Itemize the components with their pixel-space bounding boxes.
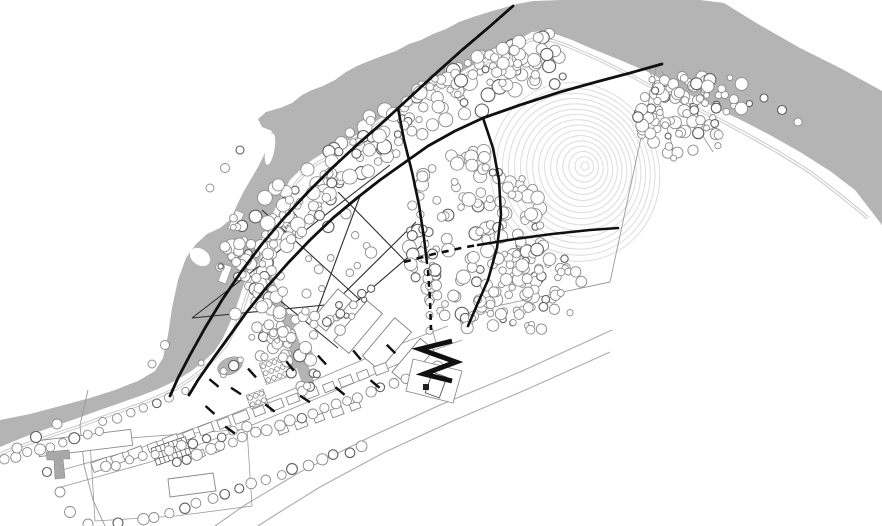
tree <box>297 227 307 237</box>
tree <box>261 353 268 360</box>
tree <box>69 433 80 444</box>
tree <box>794 118 802 126</box>
tree <box>165 509 174 518</box>
tree <box>336 309 345 318</box>
tree <box>472 277 482 287</box>
tree <box>455 91 462 98</box>
tree <box>482 164 489 171</box>
tree <box>308 201 318 211</box>
tree <box>139 404 147 412</box>
tree <box>389 379 399 389</box>
tree <box>727 75 733 81</box>
tree <box>696 95 703 102</box>
tree <box>350 139 357 146</box>
tree <box>229 361 239 371</box>
tree <box>448 290 459 301</box>
tree <box>111 461 120 470</box>
tree <box>426 119 438 131</box>
tree <box>489 287 499 297</box>
tree <box>217 433 226 442</box>
tree <box>297 414 306 423</box>
wedge-building <box>168 473 216 497</box>
tree <box>539 302 548 311</box>
tree <box>346 269 354 277</box>
tree <box>431 280 442 291</box>
tree <box>715 143 721 149</box>
tree <box>671 155 677 161</box>
tree <box>500 274 512 286</box>
tree <box>723 108 730 115</box>
tree <box>336 302 343 309</box>
tree <box>252 273 261 282</box>
tree <box>277 327 288 338</box>
tree <box>366 116 375 125</box>
tree <box>576 276 587 287</box>
tree <box>83 430 92 439</box>
tree <box>442 301 449 308</box>
tree <box>310 320 318 328</box>
tree <box>652 87 659 94</box>
tree <box>220 368 227 375</box>
tree <box>188 439 198 449</box>
tree <box>262 248 273 259</box>
tree <box>476 188 486 198</box>
tree <box>284 415 295 426</box>
tree <box>182 387 189 394</box>
tree <box>735 78 748 91</box>
tree <box>218 264 223 269</box>
tree <box>499 79 506 86</box>
tree <box>303 460 314 471</box>
tree <box>151 450 159 458</box>
tree <box>302 307 310 315</box>
tree <box>459 108 471 120</box>
tree <box>261 425 272 436</box>
tree <box>541 48 553 60</box>
wall-dash <box>209 379 218 387</box>
tree <box>230 214 238 222</box>
tree <box>665 143 673 151</box>
tree <box>315 211 325 221</box>
tree <box>509 284 515 290</box>
tree <box>533 32 543 42</box>
tree <box>718 85 726 93</box>
tree <box>335 148 343 156</box>
tree <box>99 418 107 426</box>
tree <box>306 256 312 262</box>
tree <box>252 322 263 333</box>
tree <box>704 125 710 131</box>
tree <box>0 454 9 464</box>
tree <box>505 291 513 299</box>
tree <box>161 341 170 350</box>
tree <box>426 83 434 91</box>
tree <box>458 204 465 211</box>
tree <box>287 235 296 244</box>
tree <box>479 152 491 164</box>
tree <box>439 113 453 127</box>
tree <box>561 255 568 262</box>
tree <box>489 169 496 176</box>
tree <box>662 122 669 129</box>
tree <box>366 387 376 397</box>
tree <box>343 397 352 406</box>
pier-block <box>423 384 429 390</box>
tree <box>567 310 573 316</box>
tree <box>310 311 320 321</box>
tree <box>31 432 42 443</box>
tree <box>327 255 334 262</box>
tree <box>148 360 156 368</box>
tree <box>676 130 683 137</box>
tree <box>513 250 521 258</box>
parcel <box>338 374 353 387</box>
tree <box>278 353 287 362</box>
tree <box>269 329 277 337</box>
tree <box>238 357 244 363</box>
tree <box>352 393 362 403</box>
tree <box>177 441 187 451</box>
tree <box>172 458 181 467</box>
tree <box>471 51 484 64</box>
tree <box>259 261 266 268</box>
tree <box>760 94 768 102</box>
tree <box>374 158 382 166</box>
tree <box>657 109 663 115</box>
tree <box>688 145 698 155</box>
tree <box>559 73 566 80</box>
tree <box>138 452 147 461</box>
wall-dash <box>206 406 215 414</box>
tree <box>461 322 473 334</box>
tree <box>439 310 450 321</box>
tree <box>510 319 516 325</box>
tree <box>468 251 480 263</box>
tree <box>331 399 341 409</box>
site-plan <box>0 0 882 526</box>
tree <box>127 408 136 417</box>
parcel <box>198 422 214 435</box>
tree <box>408 201 417 210</box>
tree <box>428 165 436 173</box>
tree <box>531 71 539 79</box>
tree <box>55 487 65 497</box>
tree <box>487 79 493 85</box>
tree <box>729 95 738 104</box>
tree <box>394 131 401 138</box>
tree <box>52 419 62 429</box>
tree <box>251 427 261 437</box>
tree <box>640 93 649 102</box>
tree <box>519 176 525 182</box>
tree <box>674 87 684 97</box>
tree <box>441 233 452 244</box>
tree <box>35 444 46 455</box>
orchard-lot <box>246 389 268 408</box>
tree <box>342 169 357 184</box>
tree <box>482 66 489 73</box>
tree <box>249 334 255 340</box>
tree <box>417 129 428 140</box>
tree <box>525 208 538 221</box>
tree <box>497 207 509 219</box>
tree <box>419 103 428 112</box>
tree <box>275 420 286 431</box>
tree <box>258 190 273 205</box>
tree <box>499 267 506 274</box>
tree <box>302 289 311 298</box>
tree <box>198 360 204 366</box>
tree <box>405 258 418 271</box>
tree <box>285 196 293 204</box>
tree <box>46 443 55 452</box>
parcel <box>286 393 300 405</box>
tree <box>778 106 787 115</box>
parcel <box>252 405 265 416</box>
tree <box>433 196 441 204</box>
tree <box>95 427 103 435</box>
tree <box>264 320 274 330</box>
tree <box>456 270 470 284</box>
tree <box>164 446 174 456</box>
tree <box>417 171 428 182</box>
tree <box>735 102 748 115</box>
tree <box>260 216 275 231</box>
tree <box>523 303 533 313</box>
tree <box>543 253 556 266</box>
tree <box>509 45 519 55</box>
tree <box>273 306 286 319</box>
tree <box>356 441 367 452</box>
tree <box>557 268 565 276</box>
wall-dash <box>248 369 256 378</box>
tree <box>12 443 22 453</box>
tree <box>649 77 655 83</box>
tree <box>138 514 149 525</box>
tree <box>354 262 361 269</box>
tree <box>59 439 67 447</box>
tree <box>322 193 331 202</box>
tree <box>327 178 337 188</box>
tree <box>180 503 190 513</box>
tree <box>309 331 317 339</box>
tree <box>467 262 477 272</box>
tree <box>531 191 544 204</box>
tree <box>203 435 211 443</box>
wall-dash <box>353 350 361 359</box>
tree <box>451 157 464 170</box>
tree <box>468 70 478 80</box>
tree <box>437 213 446 222</box>
tree <box>514 310 524 320</box>
tree <box>328 450 338 460</box>
tree <box>261 475 271 485</box>
tree <box>230 224 236 230</box>
tree <box>220 490 230 500</box>
tree <box>349 313 355 319</box>
tree <box>543 60 556 73</box>
tree <box>215 441 225 451</box>
tree <box>314 265 323 274</box>
tree <box>246 240 255 249</box>
tree <box>416 116 422 122</box>
tree <box>182 455 191 464</box>
tree <box>350 301 358 309</box>
tree <box>11 452 21 462</box>
tree <box>522 274 532 284</box>
tree <box>23 448 32 457</box>
tree <box>432 100 445 113</box>
parcel <box>356 369 369 380</box>
tree <box>228 438 237 447</box>
wall-dash <box>318 356 326 365</box>
tree <box>680 74 688 82</box>
tree <box>487 310 494 317</box>
tree <box>191 498 201 508</box>
tree <box>647 104 656 113</box>
tree <box>536 324 546 334</box>
tree <box>365 247 376 258</box>
tree <box>476 228 484 236</box>
tree <box>528 53 541 66</box>
site-plan-canvas <box>0 0 882 526</box>
tree <box>320 403 329 412</box>
tree <box>481 88 495 102</box>
tree <box>407 231 417 241</box>
tree <box>549 79 560 90</box>
tree <box>221 164 230 173</box>
tree <box>433 291 442 300</box>
tree <box>313 371 320 378</box>
tree <box>345 128 354 137</box>
tree <box>43 468 52 477</box>
tree <box>242 422 252 432</box>
tree <box>394 137 402 145</box>
tree <box>362 165 375 178</box>
tree <box>287 464 298 475</box>
tree <box>270 240 278 248</box>
tree <box>486 196 493 203</box>
tree <box>363 144 376 157</box>
tree <box>345 448 355 458</box>
tree <box>83 519 93 526</box>
tree <box>352 232 359 239</box>
tree <box>455 74 468 87</box>
tree <box>303 382 310 389</box>
tree <box>486 300 495 309</box>
tree <box>691 78 703 90</box>
tree <box>301 163 314 176</box>
tree <box>208 494 218 504</box>
tree <box>411 273 420 282</box>
tree <box>317 454 328 465</box>
tree <box>352 149 361 158</box>
tree <box>714 130 723 139</box>
tree <box>319 286 325 292</box>
tree <box>277 471 286 480</box>
tree <box>495 309 506 320</box>
tree <box>464 60 471 67</box>
tree <box>711 120 719 128</box>
wall-dash <box>231 388 241 395</box>
tree <box>526 325 535 334</box>
tree <box>557 290 564 297</box>
tree <box>220 242 230 252</box>
tree <box>549 304 559 314</box>
tree <box>335 325 346 336</box>
tree <box>256 301 268 313</box>
tree <box>153 399 162 408</box>
tree <box>531 243 544 256</box>
tree <box>368 285 375 292</box>
tree <box>229 308 241 320</box>
tree <box>299 341 311 353</box>
tree <box>534 265 543 274</box>
tree <box>125 456 133 464</box>
tree <box>65 507 76 518</box>
tree <box>305 214 315 224</box>
tree <box>462 193 476 207</box>
tree <box>113 518 123 526</box>
tree <box>149 513 159 523</box>
tree <box>516 259 529 272</box>
tree <box>323 318 332 327</box>
tree <box>206 184 214 192</box>
tree <box>523 287 534 298</box>
tree <box>654 97 661 104</box>
tree <box>246 478 257 489</box>
tree <box>237 432 247 442</box>
tree <box>696 116 705 125</box>
tree <box>508 191 516 199</box>
tree <box>506 261 514 269</box>
tree <box>236 146 244 154</box>
tree <box>278 287 288 297</box>
tree <box>514 60 522 68</box>
tree <box>232 258 241 267</box>
tree <box>451 178 458 185</box>
tree <box>665 133 671 139</box>
tree <box>571 267 581 277</box>
tree <box>466 159 478 171</box>
tree <box>234 238 246 250</box>
tree <box>308 409 318 419</box>
tree <box>191 449 202 460</box>
tree <box>693 128 704 139</box>
tree <box>496 42 509 55</box>
tree <box>358 289 366 297</box>
tree <box>235 484 244 493</box>
tree <box>487 320 499 332</box>
tree <box>272 179 284 191</box>
tree <box>481 244 495 258</box>
tree <box>101 461 111 471</box>
tree <box>497 57 509 69</box>
tree <box>537 222 544 229</box>
tree <box>112 414 122 424</box>
tree <box>633 112 643 122</box>
tree <box>702 80 714 92</box>
tree <box>460 99 468 107</box>
parcel <box>217 417 231 430</box>
tree <box>711 103 721 113</box>
tree <box>249 210 262 223</box>
